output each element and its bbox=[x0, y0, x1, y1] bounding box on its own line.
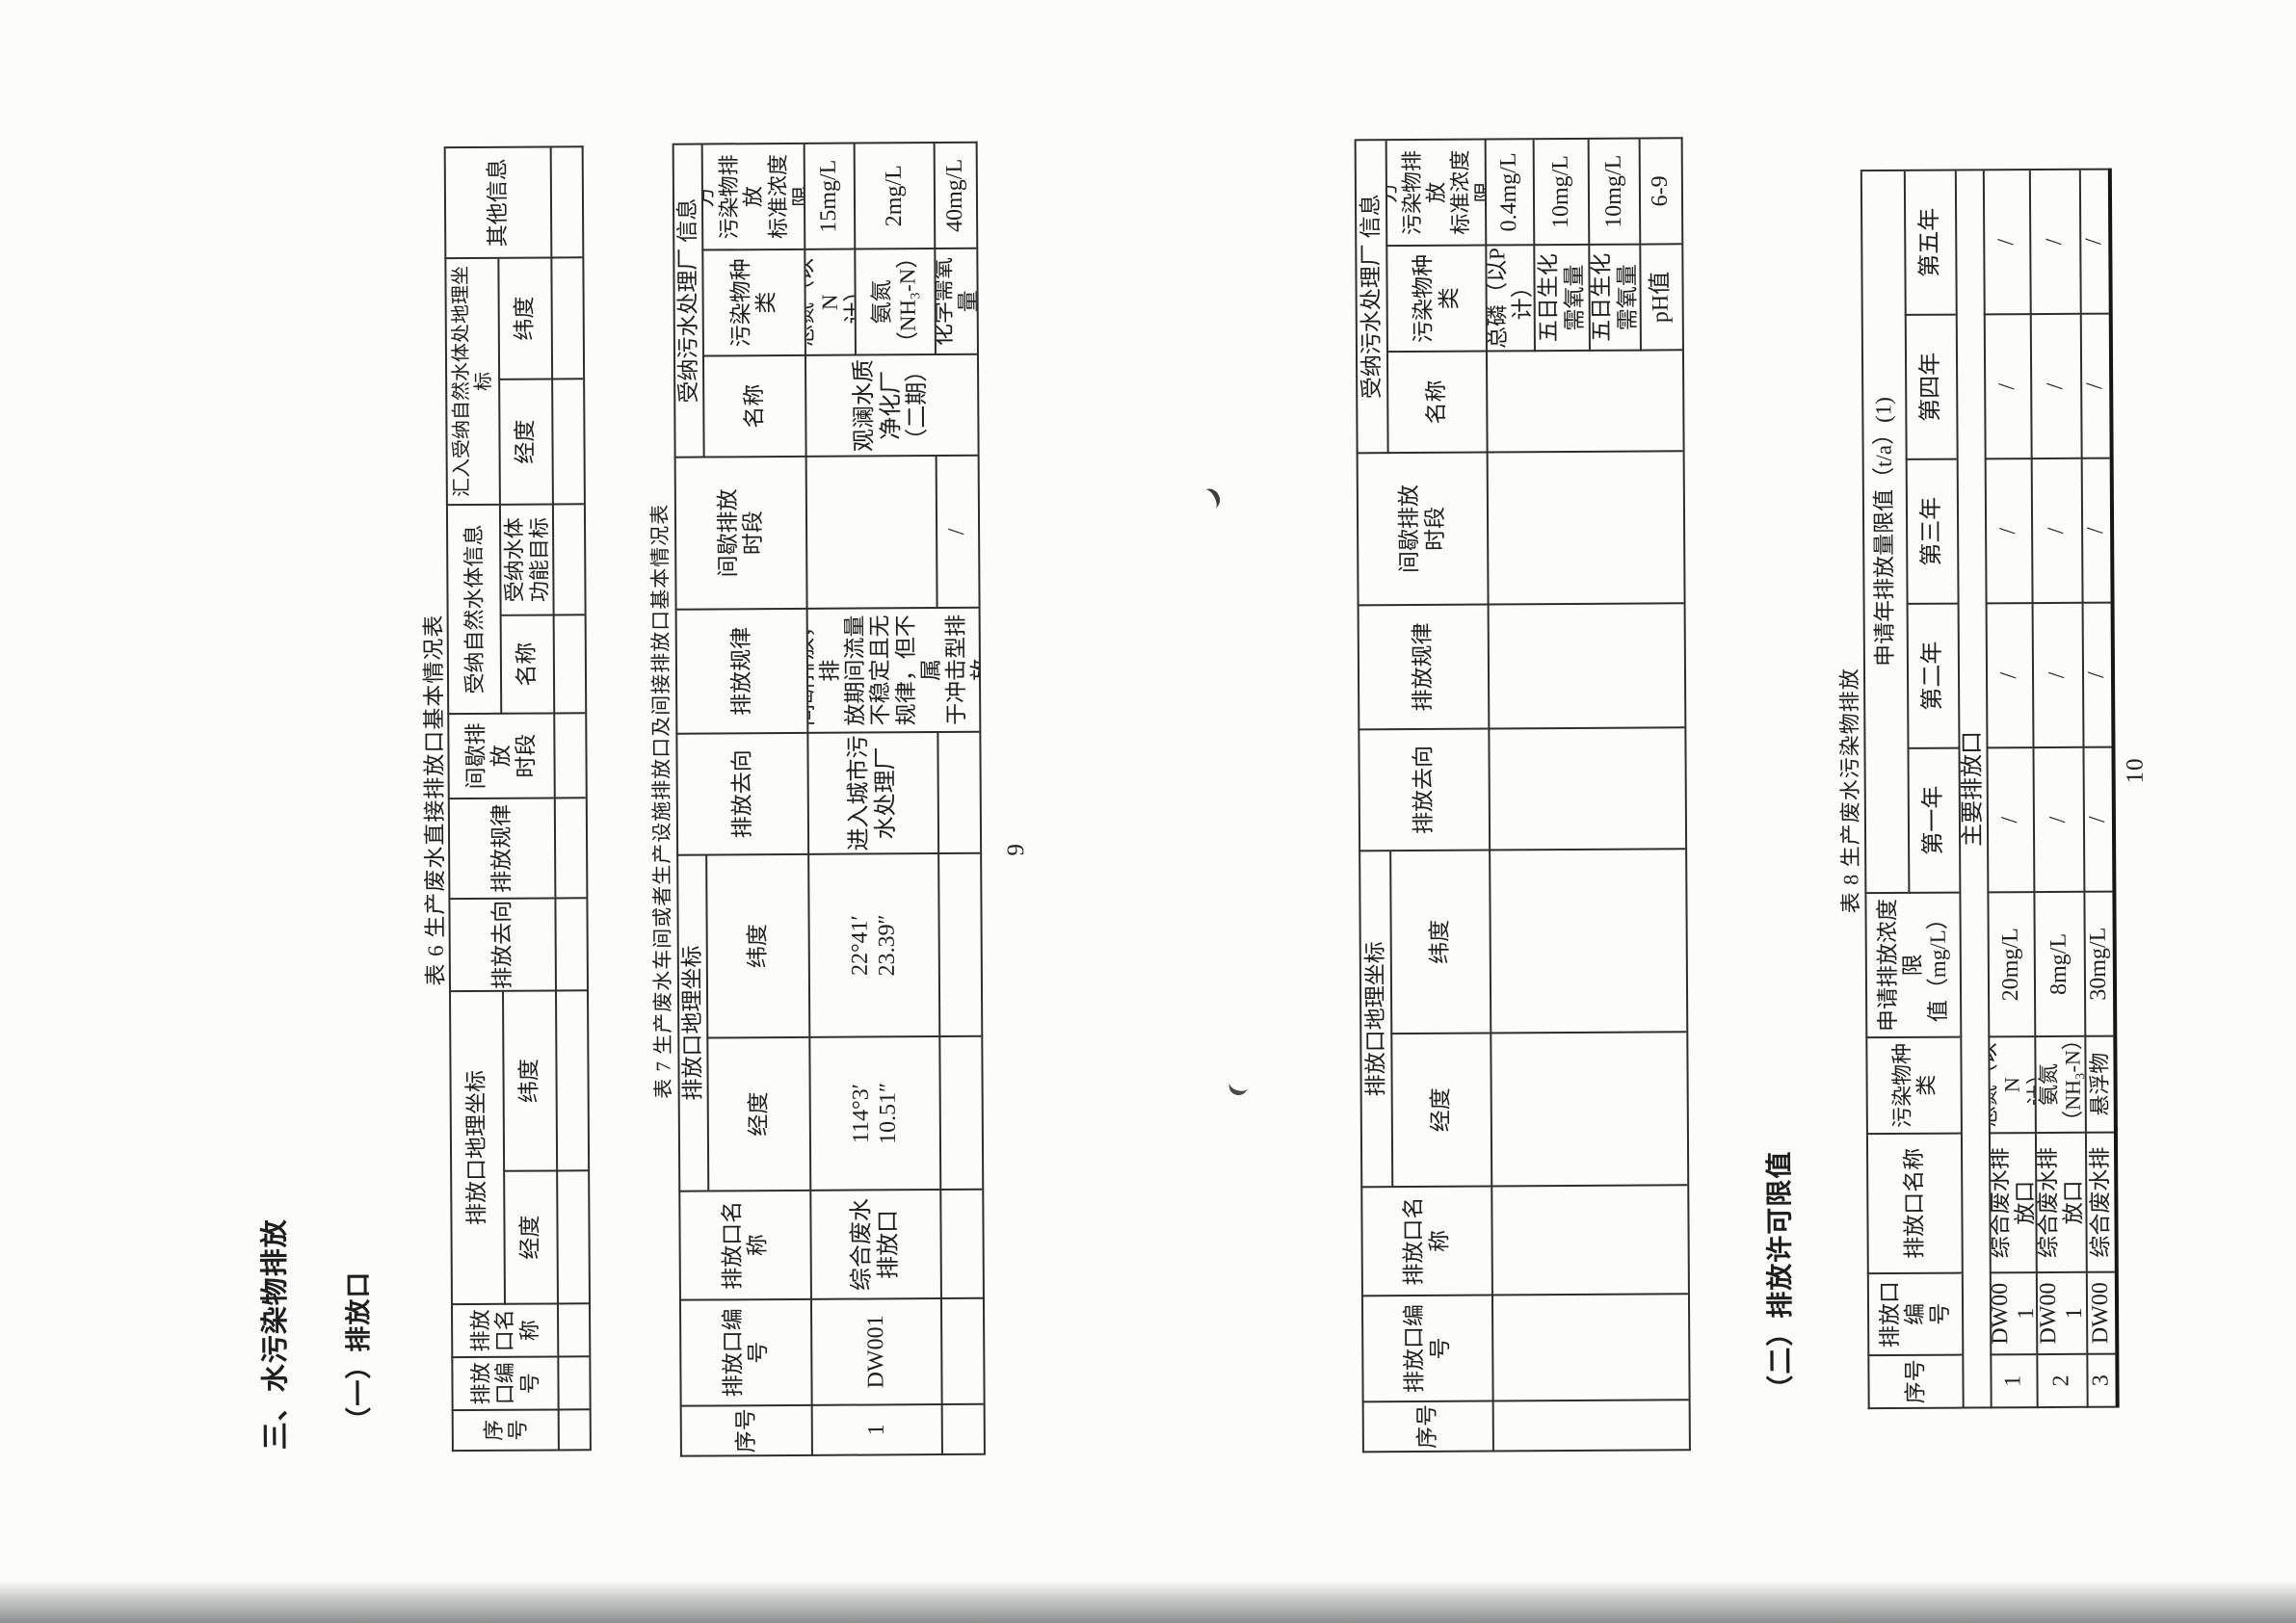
table8-cell-15: 总氮（以N 计） bbox=[1988, 1037, 2035, 1134]
table7_cont-cell-6: 排放去向 bbox=[1358, 730, 1489, 852]
table8-cell-9: 第四年 bbox=[1905, 316, 1957, 460]
table7_cont-cell-21 bbox=[1486, 351, 1683, 453]
table7-cell-2: 排放口名称 bbox=[678, 1191, 810, 1301]
table6-cell-14: 纬度 bbox=[497, 258, 551, 380]
table7_cont-cell-11: 污染物种类 bbox=[1386, 247, 1486, 353]
table7-cell-3: 排放口地理坐标 bbox=[676, 856, 707, 1192]
table8-cell-38: / bbox=[2082, 604, 2112, 748]
table8-cell-31: / bbox=[2029, 170, 2080, 315]
table7_cont-cell-1: 排放口编号 bbox=[1361, 1296, 1492, 1403]
table8-cell-22: 2 bbox=[2036, 1355, 2086, 1408]
table7-cell-24 bbox=[937, 733, 980, 854]
scan-artifact-1 bbox=[1197, 485, 1224, 513]
table7-cell-7: 排放规律 bbox=[675, 610, 807, 735]
table8-cell-20: / bbox=[1984, 315, 2031, 459]
table7_cont-cell-7: 排放规律 bbox=[1358, 606, 1489, 731]
table7_cont-cell-10: 名称 bbox=[1386, 353, 1487, 455]
table8-cell-16: 20mg/L bbox=[1987, 893, 2034, 1037]
table7_cont-cell-27: 10mg/L bbox=[1588, 140, 1640, 246]
table8-cell-19: / bbox=[1985, 459, 2032, 604]
table7-cell-34: 40mg/L bbox=[934, 144, 977, 249]
subsection-heading-permit-limits: （二）排放许可限值 bbox=[1758, 1151, 1799, 1402]
table6-cell-28 bbox=[550, 147, 583, 258]
table7_cont-cell-20 bbox=[1487, 452, 1684, 605]
table8-cell-5: 申请年排放量限值（t/a）(1) bbox=[1861, 171, 1909, 894]
table8-cell-13: DW00 1 bbox=[1990, 1273, 2037, 1355]
table7_cont-cell-2: 排放口名称 bbox=[1360, 1188, 1491, 1297]
table7-cell-8: 间歇排放 时段 bbox=[674, 458, 806, 611]
table8-cell-25: 氨氮 （NH₃-N） bbox=[2034, 1037, 2085, 1134]
table7_cont-cell-28: pH值 bbox=[1639, 245, 1682, 351]
table7-cell-22 bbox=[937, 854, 981, 1037]
table7-cell-6: 排放去向 bbox=[675, 734, 807, 856]
table7_cont-cell-3: 排放口地理坐标 bbox=[1359, 851, 1391, 1188]
table7_cont-cell-0: 序号 bbox=[1362, 1402, 1492, 1453]
table8-cell-8: 第三年 bbox=[1906, 460, 1958, 605]
table8-cell-29: / bbox=[2031, 459, 2082, 604]
table8-cell-4: 申请排放浓度限 值（mg/L） bbox=[1864, 894, 1960, 1039]
table7-cell-16 bbox=[940, 1299, 984, 1405]
table7_cont-cell-13 bbox=[1492, 1400, 1689, 1452]
table6-direct-discharge-outlets: 序号排放 口编 号排放 口名 称排放口地理坐标经度纬度排放去向排放规律间歇排放 … bbox=[444, 145, 592, 1452]
table8-cell-24: 综合废水排 放口 bbox=[2035, 1134, 2086, 1273]
table7-cell-25: 间断排放，排 放期间流量 不稳定且无 规律，但不属 于冲击型排 放 bbox=[806, 609, 980, 734]
table8-cell-27: / bbox=[2032, 748, 2083, 893]
table7_cont-cell-15 bbox=[1491, 1186, 1688, 1296]
document-page-spread: 三、水污染物排放 （一）排放口 表 6 生产废水直接排放口基本情况表 序号排放 … bbox=[0, 0, 2296, 1623]
table8-cell-30: / bbox=[2030, 315, 2081, 459]
table7-cell-11: 污染物种类 bbox=[701, 250, 805, 357]
table6-cell-25 bbox=[552, 505, 585, 615]
table7-cell-0: 序号 bbox=[680, 1406, 811, 1457]
table7-cell-18 bbox=[939, 1191, 983, 1299]
table6-cell-26 bbox=[551, 380, 584, 505]
table6-cell-4: 经度 bbox=[503, 1171, 557, 1304]
table8-cell-10: 第五年 bbox=[1904, 171, 1956, 316]
table6-cell-24 bbox=[553, 615, 586, 714]
table7_cont-cell-8: 间歇排放 时段 bbox=[1357, 454, 1488, 607]
table7_cont-cell-25: 10mg/L bbox=[1533, 140, 1589, 246]
table6-cell-17 bbox=[557, 1357, 589, 1410]
table6-cell-22 bbox=[554, 798, 587, 899]
table7-indirect-discharge-outlets: 序号排放口编号排放口名称排放口地理坐标经度纬度排放去向排放规律间歇排放 时段受纳… bbox=[673, 142, 986, 1457]
table7-cell-1: 排放口编号 bbox=[679, 1300, 811, 1407]
table6-cell-10: 名称 bbox=[500, 615, 554, 714]
table7_cont-cell-5: 纬度 bbox=[1389, 851, 1490, 1035]
scan-edge-shadow bbox=[0, 1581, 2296, 1623]
table8-cell-36: 30mg/L bbox=[2083, 893, 2113, 1037]
table6-cell-20 bbox=[555, 991, 588, 1171]
table7-cell-10: 名称 bbox=[702, 356, 805, 458]
table7-cell-31: 氨氮 （NH₃-N） bbox=[854, 249, 935, 356]
scan-artifact-2 bbox=[1227, 1073, 1251, 1098]
page-number-9: 9 bbox=[1003, 843, 1030, 856]
table7-continuation: 序号排放口编号排放口名称排放口地理坐标经度纬度排放去向排放规律间歇排放 时段受纳… bbox=[1355, 137, 1691, 1453]
table7-cell-19: 114°3′ 10.51″ bbox=[808, 1037, 939, 1191]
section-heading: 三、水污染物排放 bbox=[251, 1218, 293, 1450]
table7-cell-4: 经度 bbox=[706, 1038, 809, 1192]
table8-cell-18: / bbox=[1986, 604, 2033, 748]
table6-cell-19 bbox=[556, 1171, 589, 1304]
table6-cell-16 bbox=[558, 1410, 590, 1451]
table8-cell-33: DW00 bbox=[2086, 1273, 2116, 1355]
table7-cell-12: 国家或地方 污染物排放 标准浓度限 值(mg/L) bbox=[701, 144, 805, 251]
table6-cell-21 bbox=[554, 899, 587, 991]
table6-cell-2: 排放 口名 称 bbox=[451, 1304, 557, 1358]
table7-cell-29: 总氮（以N 计） bbox=[804, 250, 855, 356]
table6-cell-7: 排放规律 bbox=[448, 798, 555, 900]
table6-cell-5: 纬度 bbox=[502, 991, 556, 1171]
table7-cell-9: 受纳污水处理厂 信息 bbox=[673, 145, 703, 458]
table7_cont-cell-29: 6-9 bbox=[1639, 139, 1682, 245]
table8-cell-7: 第二年 bbox=[1907, 605, 1959, 749]
table7_cont-cell-24: 五日生化 需氧量 bbox=[1533, 246, 1589, 352]
table7-cell-23: 进入城市污 水处理厂 bbox=[806, 733, 937, 855]
table6-cell-11: 受纳水体 功能目标 bbox=[499, 505, 553, 615]
table7-cell-15: DW001 bbox=[810, 1299, 941, 1406]
table7-cell-27: / bbox=[936, 457, 979, 609]
table7_cont-cell-19 bbox=[1488, 604, 1685, 729]
table7-cell-30: 15mg/L bbox=[804, 144, 855, 250]
table7-cell-21: 22°41′ 23.39″ bbox=[807, 854, 938, 1038]
table7-cell-32: 2mg/L bbox=[854, 144, 935, 250]
table8-cell-34: 综合废水排 bbox=[2085, 1134, 2115, 1273]
table8-pollutant-discharge-limits: 序号排放口编 号排放口名称污染物种类申请排放浓度限 值（mg/L）申请年排放量限… bbox=[1861, 169, 2120, 1410]
table8-cell-0: 序号 bbox=[1867, 1356, 1962, 1410]
table6-cell-3: 排放口地理坐标 bbox=[449, 992, 504, 1305]
table8-cell-28: / bbox=[2032, 604, 2083, 748]
table8-cell-23: DW00 1 bbox=[2036, 1273, 2087, 1355]
table7_cont-cell-22: 总磷（以P 计） bbox=[1485, 246, 1534, 352]
table8-cell-17: / bbox=[1986, 748, 2033, 893]
table6-cell-15: 其他信息 bbox=[444, 147, 551, 259]
table6-cell-9: 受纳自然水体信息 bbox=[446, 506, 500, 715]
table8-cell-12: 1 bbox=[1990, 1355, 2036, 1408]
table8-cell-26: 8mg/L bbox=[2033, 893, 2084, 1037]
table7-cell-28: 观澜水质 净化厂 （二期） bbox=[805, 355, 978, 458]
table8-cell-32: 3 bbox=[2086, 1355, 2115, 1408]
table7_cont-cell-12: 国家或地方 污染物排放 标准浓度限 值(mg/L) bbox=[1386, 141, 1486, 248]
table8-cell-40: / bbox=[2080, 315, 2110, 459]
table7_cont-cell-17 bbox=[1489, 850, 1686, 1034]
table6-cell-13: 经度 bbox=[498, 380, 552, 505]
table6-cell-6: 排放去向 bbox=[448, 899, 555, 992]
table7_cont-cell-14 bbox=[1491, 1295, 1689, 1401]
table6-cell-8: 间歇排放 时段 bbox=[447, 714, 554, 799]
table8-cell-1: 排放口编 号 bbox=[1867, 1274, 1963, 1357]
table7-cell-13: 1 bbox=[811, 1405, 941, 1456]
table7-cell-5: 纬度 bbox=[705, 855, 808, 1039]
table8-cell-35: 悬浮物 bbox=[2084, 1037, 2114, 1134]
table7_cont-cell-26: 五日生化 需氧量 bbox=[1588, 246, 1640, 352]
table8-cell-14: 综合废水排 放口 bbox=[1989, 1134, 2036, 1273]
table7_cont-cell-23: 0.4mg/L bbox=[1485, 140, 1534, 246]
table7-cell-33: 化学需氧 量 bbox=[934, 249, 977, 355]
table8-cell-21: / bbox=[1983, 170, 2030, 315]
table8-cell-6: 第一年 bbox=[1907, 749, 1959, 894]
table7-cell-14 bbox=[941, 1405, 984, 1455]
table6-cell-1: 排放 口编 号 bbox=[451, 1357, 557, 1411]
table8-cell-3: 污染物种类 bbox=[1865, 1038, 1961, 1136]
table6-cell-27 bbox=[550, 258, 583, 380]
table6-cell-0: 序号 bbox=[452, 1410, 558, 1452]
table8-cell-41: / bbox=[2079, 170, 2109, 315]
table7-cell-20 bbox=[938, 1037, 982, 1191]
page-number-10: 10 bbox=[2123, 757, 2150, 783]
table7-cell-17: 综合废水 排放口 bbox=[809, 1191, 940, 1300]
table6-cell-12: 汇入受纳自然水体处地理坐标 bbox=[444, 259, 499, 506]
table8-cell-37: / bbox=[2082, 748, 2112, 893]
table7_cont-cell-9: 受纳污水处理厂 信息 bbox=[1355, 141, 1387, 454]
table7_cont-cell-16 bbox=[1490, 1033, 1687, 1187]
table7-cell-26 bbox=[805, 457, 937, 610]
subsection-heading-outlets: （一）排放口 bbox=[337, 1271, 376, 1433]
table8-cell-2: 排放口名称 bbox=[1866, 1135, 1962, 1275]
table8-cell-39: / bbox=[2081, 459, 2111, 604]
scanned-document: 三、水污染物排放 （一）排放口 表 6 生产废水直接排放口基本情况表 序号排放 … bbox=[0, 0, 2296, 1623]
table6-cell-23 bbox=[553, 714, 586, 798]
table7_cont-cell-4: 经度 bbox=[1390, 1034, 1491, 1189]
table7_cont-cell-18 bbox=[1488, 728, 1685, 851]
table6-cell-18 bbox=[557, 1304, 589, 1357]
